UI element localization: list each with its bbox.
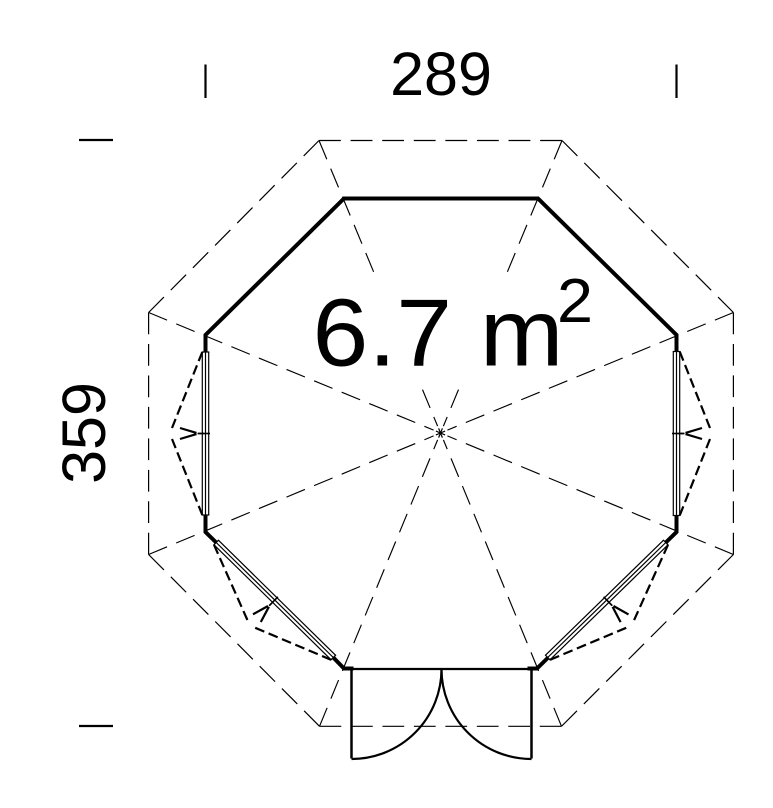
svg-text:289: 289: [390, 40, 492, 108]
svg-text:2: 2: [557, 267, 593, 336]
svg-text:6.7 m: 6.7 m: [313, 280, 564, 387]
svg-text:359: 359: [50, 382, 118, 484]
